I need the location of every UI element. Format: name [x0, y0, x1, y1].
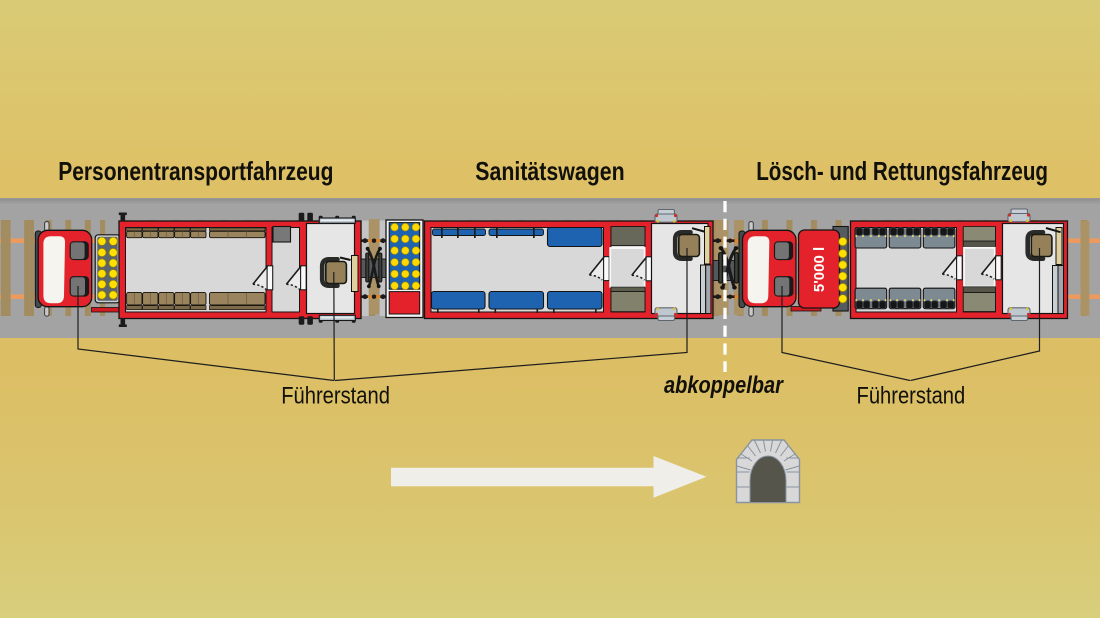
svg-text:5'000 l: 5'000 l	[811, 247, 828, 292]
svg-text:Sanitätswagen: Sanitätswagen	[475, 157, 624, 185]
svg-text:Führerstand: Führerstand	[857, 382, 966, 409]
svg-text:abkoppelbar: abkoppelbar	[664, 371, 784, 398]
svg-text:Personentransportfahrzeug: Personentransportfahrzeug	[58, 157, 333, 185]
svg-text:Führerstand: Führerstand	[281, 382, 390, 409]
svg-text:Lösch- und Rettungsfahrzeug: Lösch- und Rettungsfahrzeug	[756, 157, 1048, 186]
